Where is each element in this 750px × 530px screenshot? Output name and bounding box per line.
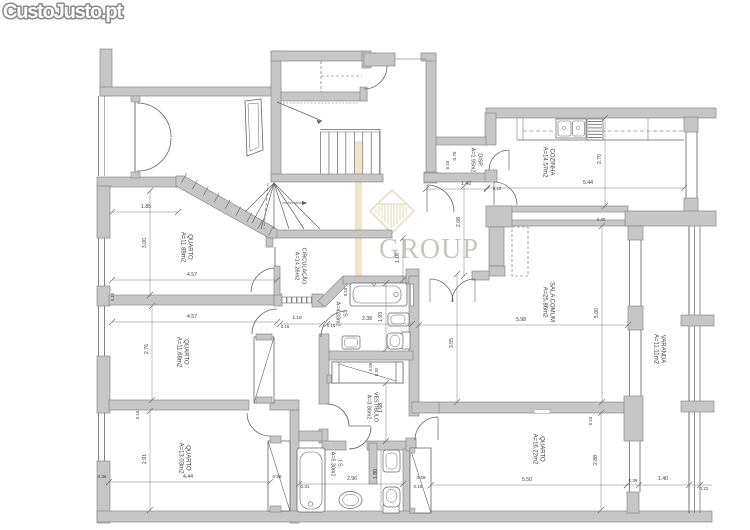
svg-text:0.15: 0.15	[327, 323, 336, 328]
svg-text:QUARTO: QUARTO	[187, 234, 193, 260]
svg-text:0.15: 0.15	[445, 160, 450, 169]
svg-text:5.50: 5.50	[522, 477, 532, 483]
svg-text:QUARTO: QUARTO	[183, 339, 189, 365]
svg-text:4.57: 4.57	[187, 272, 197, 278]
svg-text:0.15: 0.15	[588, 416, 593, 425]
svg-text:QUARTO: QUARTO	[185, 445, 191, 471]
svg-text:A=11.68m2: A=11.68m2	[176, 337, 182, 368]
svg-text:A=16.22m2: A=16.22m2	[532, 434, 538, 466]
svg-text:0.59: 0.59	[273, 474, 282, 479]
svg-text:1.93: 1.93	[378, 312, 384, 322]
svg-text:5.98: 5.98	[516, 317, 526, 323]
svg-text:A=4.33m2: A=4.33m2	[335, 302, 341, 327]
svg-text:1.68: 1.68	[378, 403, 384, 413]
svg-text:SALA COMUM: SALA COMUM	[549, 282, 555, 322]
svg-text:2.76: 2.76	[144, 344, 150, 354]
svg-text:2.38: 2.38	[362, 316, 372, 322]
svg-text:0.59: 0.59	[368, 362, 373, 371]
svg-text:0.31: 0.31	[301, 484, 310, 489]
svg-text:3.55: 3.55	[449, 338, 455, 348]
svg-text:4.57: 4.57	[187, 314, 197, 320]
svg-text:0.75: 0.75	[452, 151, 457, 160]
svg-text:0.15: 0.15	[493, 186, 502, 191]
svg-text:2.91: 2.91	[142, 454, 148, 464]
svg-text:0.15: 0.15	[135, 410, 140, 419]
svg-text:DISP.: DISP.	[477, 153, 483, 166]
svg-text:2.70: 2.70	[597, 154, 603, 164]
svg-text:1.80: 1.80	[373, 469, 379, 479]
svg-text:0.36: 0.36	[98, 474, 107, 479]
svg-text:0.59: 0.59	[417, 475, 426, 480]
svg-text:CustoJusto.pt: CustoJusto.pt	[3, 1, 123, 23]
svg-text:2.68: 2.68	[456, 217, 462, 227]
svg-text:I.S.: I.S.	[342, 310, 348, 318]
svg-text:2.96: 2.96	[347, 476, 357, 482]
svg-text:A=11.11m2: A=11.11m2	[653, 334, 659, 365]
svg-text:A=13.03m2: A=13.03m2	[178, 443, 184, 475]
svg-text:I.S.: I.S.	[337, 460, 343, 468]
svg-text:3.00: 3.00	[142, 238, 148, 248]
svg-text:0.36: 0.36	[629, 478, 638, 483]
svg-text:0.40: 0.40	[597, 217, 606, 222]
svg-text:CIRCULAÇÃO: CIRCULAÇÃO	[301, 248, 308, 285]
svg-text:2.88: 2.88	[593, 455, 599, 465]
svg-text:A=5.30m2: A=5.30m2	[330, 452, 336, 477]
svg-text:4.44: 4.44	[183, 474, 193, 480]
svg-text:0.15: 0.15	[281, 324, 290, 329]
svg-text:0.22: 0.22	[700, 486, 709, 491]
svg-text:A=11.88m2: A=11.88m2	[180, 232, 186, 263]
svg-text:0.15: 0.15	[414, 484, 423, 489]
svg-text:0.30: 0.30	[374, 367, 379, 376]
svg-text:1.19: 1.19	[292, 315, 302, 321]
svg-text:COZINHA: COZINHA	[549, 149, 555, 176]
svg-text:A=1.95m2: A=1.95m2	[470, 148, 476, 173]
svg-text:0.15: 0.15	[343, 287, 348, 296]
svg-text:A=3.86m2: A=3.86m2	[366, 395, 372, 420]
svg-text:A=14.26m2: A=14.26m2	[294, 252, 300, 281]
svg-text:5.00: 5.00	[594, 308, 600, 318]
svg-text:0.15: 0.15	[110, 292, 115, 301]
svg-text:5.44: 5.44	[583, 180, 593, 186]
svg-text:1.85: 1.85	[141, 204, 151, 210]
svg-text:VARANDA: VARANDA	[660, 335, 666, 364]
svg-text:1.16: 1.16	[395, 253, 401, 263]
svg-text:QUARTO: QUARTO	[539, 436, 545, 462]
svg-text:1.40: 1.40	[658, 476, 668, 482]
svg-text:A=25.86m2: A=25.86m2	[542, 287, 548, 319]
svg-text:A=14.57m2: A=14.57m2	[542, 147, 548, 179]
